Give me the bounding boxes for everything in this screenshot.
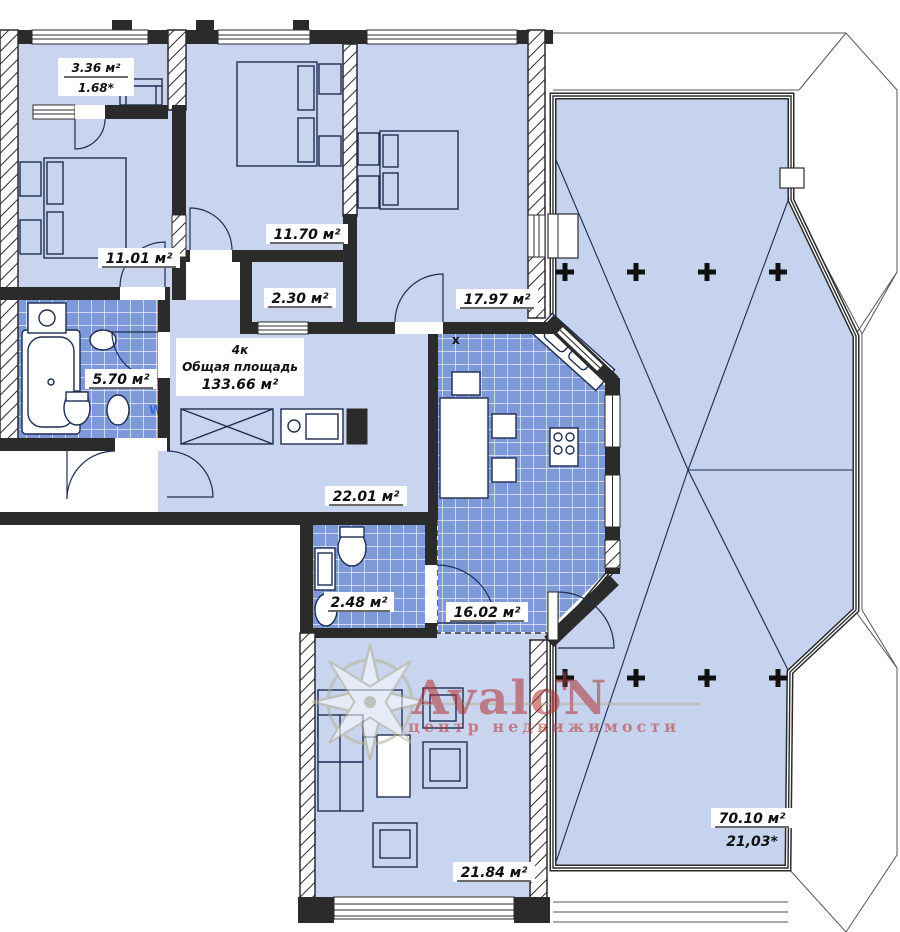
label-living: 21.84 м² [453, 862, 535, 882]
svg-text:17.97 м²: 17.97 м² [464, 292, 532, 308]
label-bedroom2: 11.70 м² [266, 224, 348, 244]
svg-text:11.70 м²: 11.70 м² [274, 227, 342, 243]
label-balcony: 3.36 м² 1.68* [58, 58, 134, 96]
svg-text:22.01 м²: 22.01 м² [333, 489, 401, 505]
label-closet: 2.30 м² [264, 288, 336, 308]
svg-text:16.02 м²: 16.02 м² [454, 605, 522, 621]
svg-text:2.48 м²: 2.48 м² [331, 595, 389, 611]
svg-text:3.36 м²: 3.36 м² [72, 61, 122, 75]
svg-text:21.84 м²: 21.84 м² [461, 865, 529, 881]
floorplan-page: W [0, 0, 900, 932]
label-kitchen: 16.02 м² [446, 602, 528, 622]
svg-text:2.30 м²: 2.30 м² [272, 291, 330, 307]
terrace-sill-bracket [780, 168, 804, 188]
svg-text:4к: 4к [231, 343, 249, 357]
window [32, 30, 517, 44]
vent-mark: x [452, 333, 460, 347]
label-wc: 2.48 м² [324, 592, 394, 612]
svg-text:1.68*: 1.68* [78, 81, 115, 95]
label-bedroom3: 17.97 м² [456, 289, 538, 309]
label-bedroom1: 11.01 м² [98, 248, 180, 268]
svg-text:5.70 м²: 5.70 м² [93, 372, 151, 388]
brand-tagline: центр недвижимости [408, 717, 680, 736]
label-summary: 4к Общая площадь 133.66 м² [176, 338, 304, 396]
svg-text:70.10 м²: 70.10 м² [719, 811, 787, 827]
svg-text:11.01 м²: 11.01 м² [106, 251, 174, 267]
svg-text:21,03*: 21,03* [726, 834, 778, 850]
label-hall: 22.01 м² [325, 486, 407, 506]
svg-text:Общая площадь: Общая площадь [182, 360, 298, 374]
brand-plus: + [552, 663, 577, 698]
svg-text:133.66 м²: 133.66 м² [202, 377, 279, 393]
floorplan-canvas: W [0, 0, 900, 932]
label-bathroom: 5.70 м² [85, 369, 157, 389]
